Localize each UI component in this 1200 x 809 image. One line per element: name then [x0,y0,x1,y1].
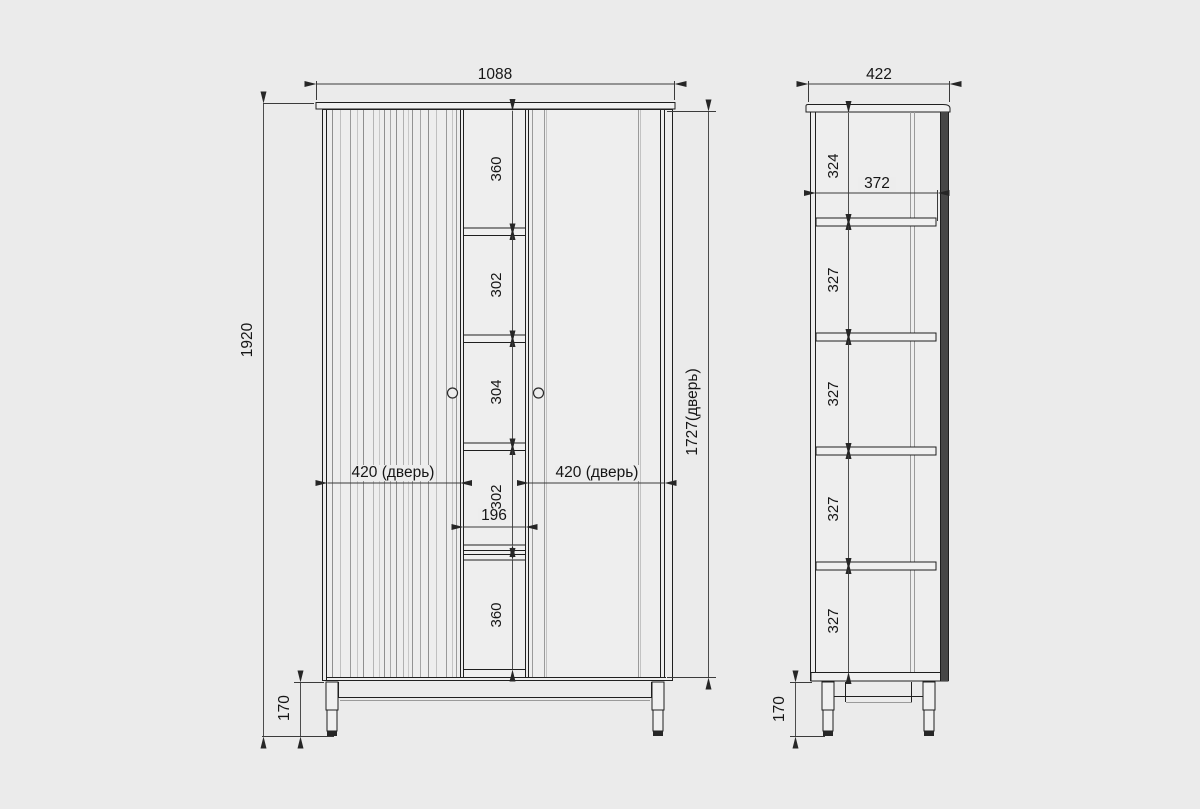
side-door-profile [941,112,949,681]
side-back-foot-cap [924,731,934,736]
dim-side-section-1: 327 [825,267,842,292]
front-legs [326,682,664,736]
dim-section-4: 302 [488,484,505,509]
right-door-handle [534,388,544,398]
front-top-panel [316,103,675,110]
dim-side-top-section: 324 [825,153,842,178]
dim-section-2: 302 [488,272,505,297]
dim-left-door-width: 420 (дверь) [352,464,435,481]
dim-front-total-height: 1920 [239,322,256,357]
dim-section-3: 304 [488,379,505,404]
dim-side-section-2: 327 [825,381,842,406]
dim-side-section-3: 327 [825,496,842,521]
dim-side-depth: 422 [866,66,892,83]
dim-side-section-4: 327 [825,608,842,633]
dim-front-total-width: 1088 [478,66,512,83]
side-top-panel [806,105,950,113]
dim-front-leg-height: 170 [276,695,293,721]
dim-side-inner-depth: 372 [864,175,890,192]
side-legs [822,682,935,736]
left-door-handle [448,388,458,398]
dim-door-height: 1727(дверь) [684,368,701,455]
side-front-foot-cap [823,731,833,736]
front-view: 1088 1920 1727(дверь) 420 (дверь) 420 (д… [239,66,716,737]
side-view: 422 324 372 327 327 327 327 170 [771,66,950,737]
dim-right-door-width: 420 (дверь) [556,464,639,481]
dim-side-leg-height: 170 [771,696,788,722]
dim-section-1: 360 [488,156,505,181]
dim-section-5: 360 [488,602,505,627]
technical-drawing: 1088 1920 1727(дверь) 420 (дверь) 420 (д… [0,0,1200,809]
front-right-foot-cap [653,731,663,736]
drawing-canvas: 1088 1920 1727(дверь) 420 (дверь) 420 (д… [0,0,1200,809]
front-left-foot-cap [327,731,337,736]
